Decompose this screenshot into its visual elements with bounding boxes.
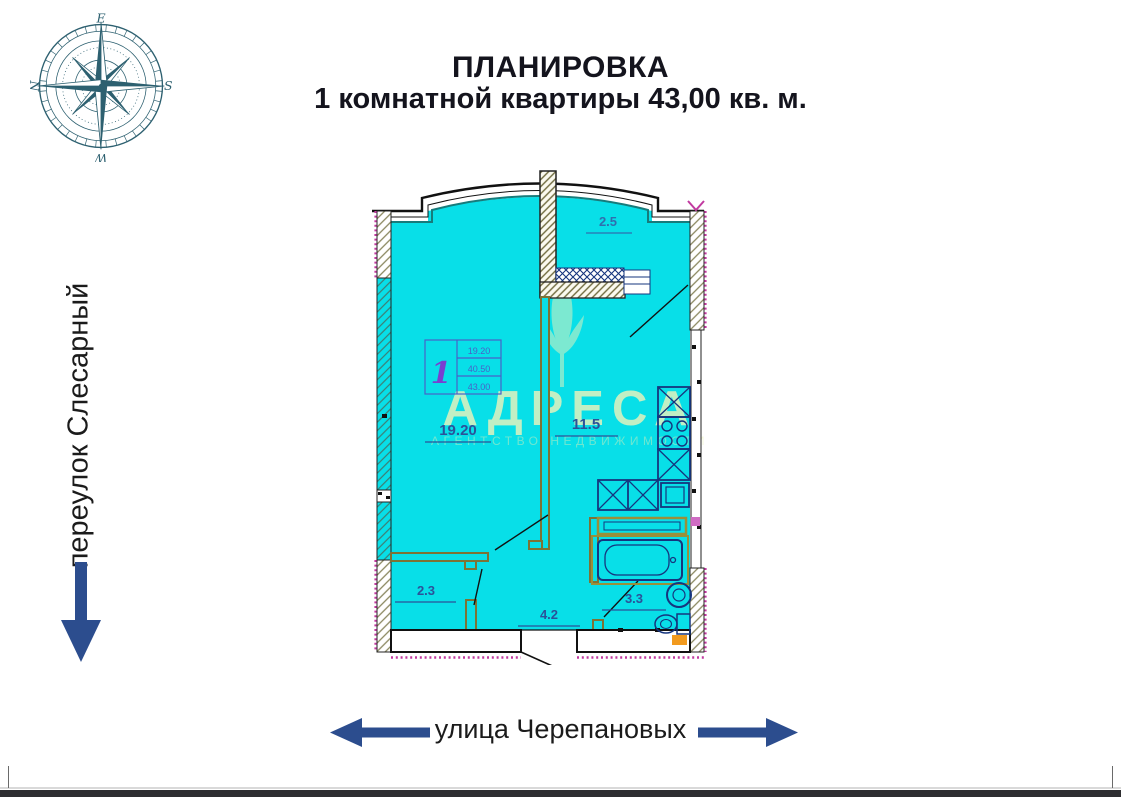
unit-number: 1 (431, 356, 452, 391)
room-label-balcony: 2.5 (599, 214, 617, 229)
street-arrow-right (698, 718, 798, 747)
street-arrow-left (330, 718, 430, 747)
compass-letter-north: N (28, 80, 42, 93)
page-left-edge (8, 766, 9, 788)
wall-marker (691, 517, 700, 526)
compass-rose: E S W N (28, 10, 174, 162)
entrance-door-swing (521, 652, 615, 665)
room-label-hallway: 4.2 (540, 607, 558, 622)
room-label-bathroom: 3.3 (625, 591, 643, 606)
page-bottom-line (0, 787, 1121, 789)
info-area-no-balcony: 40.50 (468, 364, 491, 374)
balcony-door-threshold (624, 270, 650, 294)
kitchen-counter-strip-icon (556, 268, 624, 282)
page-bottom-border (0, 790, 1121, 797)
info-total-area: 43.00 (468, 382, 491, 392)
floor-plan-page: ПЛАНИРОВКА 1 комнатной квартиры 43,00 кв… (0, 0, 1121, 800)
compass-letter-east: E (95, 11, 105, 26)
bath-heater-icon (672, 635, 687, 645)
room-label-closet: 2.3 (417, 583, 435, 598)
compass-cardinal-arms (38, 23, 165, 150)
street-arrow-down (59, 562, 103, 664)
bottom-wall (391, 628, 704, 665)
info-living-area: 19.20 (468, 346, 491, 356)
compass-letter-west: W (93, 151, 107, 162)
page-right-edge (1112, 766, 1113, 788)
left-exterior-wall (376, 211, 392, 652)
room-label-kitchen: 11.5 (572, 416, 600, 433)
street-label-bottom: улица Черепановых (0, 714, 1121, 745)
floor-plan: АДРЕСА АГЕНТСТВО НЕДВИЖИМОСТИ (370, 165, 710, 665)
room-label-living: 19.20 (439, 422, 477, 439)
survey-mark (688, 201, 704, 210)
compass-letter-south: S (164, 78, 173, 93)
